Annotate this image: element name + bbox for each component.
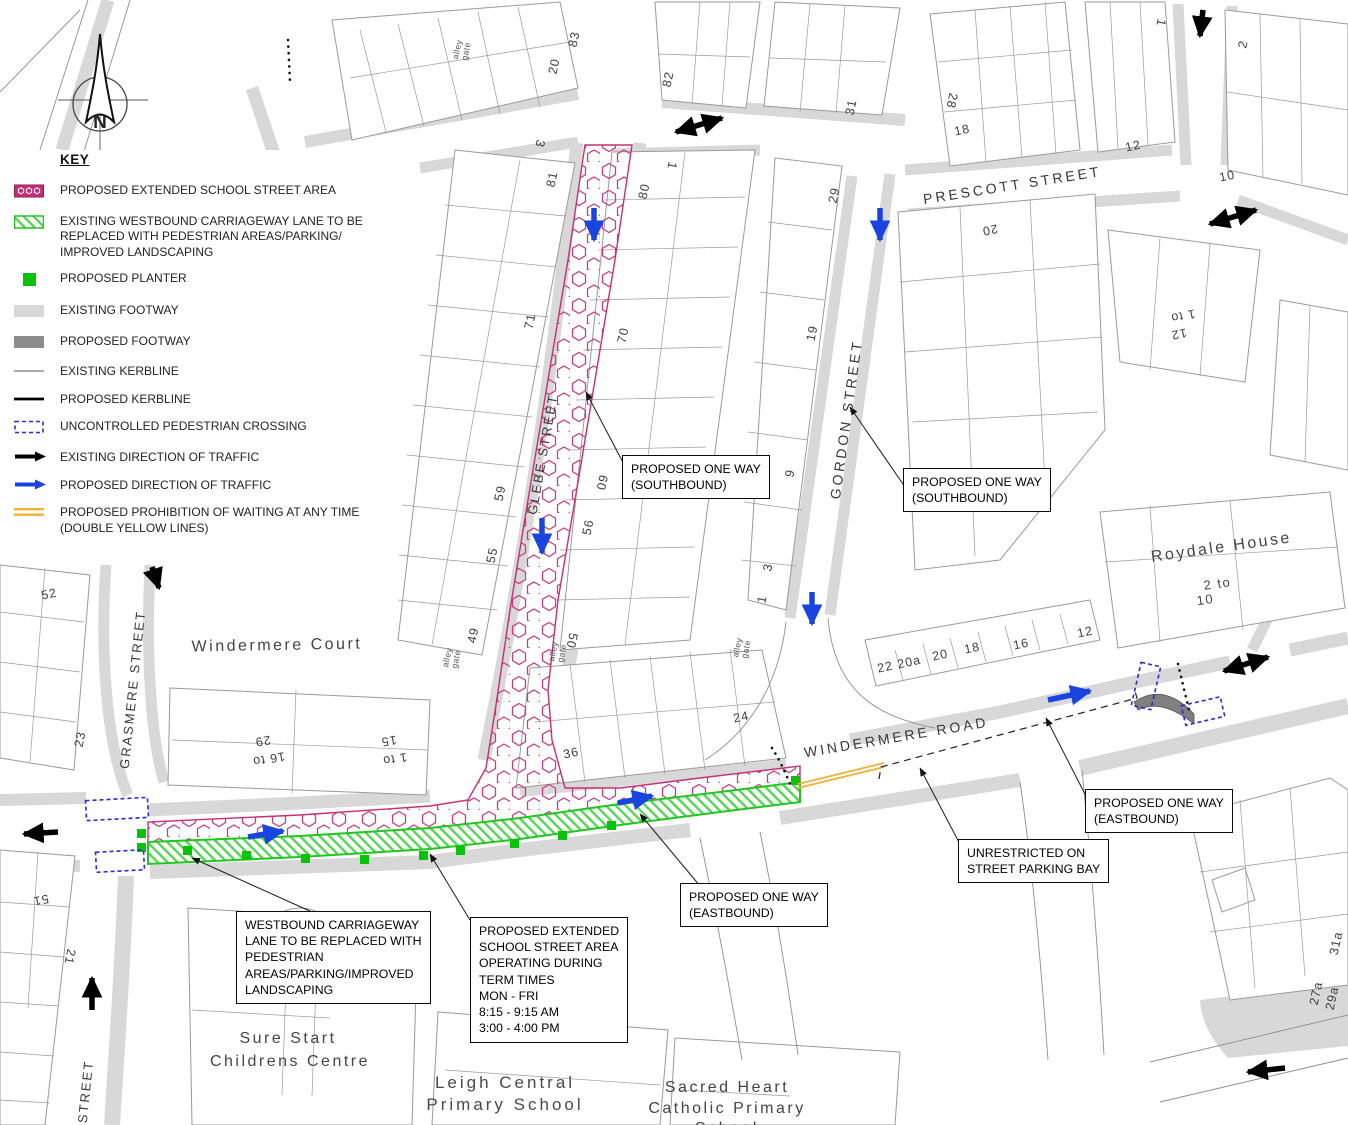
- callout-line: 8:15 - 9:15 AM: [479, 1004, 619, 1020]
- key-item-landscaping: EXISTING WESTBOUND CARRIAGEWAY LANE TO B…: [14, 214, 394, 261]
- key-heading: KEY: [60, 152, 394, 167]
- proposed-footway-icon: [14, 334, 48, 354]
- school-street-hatch-icon: [14, 183, 48, 203]
- callout-line: 3:00 - 4:00 PM: [479, 1020, 619, 1036]
- place-roydale-range-2: 10: [1196, 591, 1215, 608]
- callout-line: AREAS/PARKING/IMPROVED: [245, 966, 422, 982]
- key-item-proposed-footway: PROPOSED FOOTWAY: [14, 334, 394, 354]
- key-item-crossing: UNCONTROLLED PEDESTRIAN CROSSING: [14, 419, 394, 439]
- callout-line: STREET PARKING BAY: [967, 861, 1100, 877]
- key-label: PROPOSED PROHIBITION OF WAITING AT ANY T…: [60, 505, 394, 536]
- house-number: 15: [380, 733, 398, 750]
- callout-line: (SOUTHBOUND): [631, 477, 761, 493]
- callout-line: PROPOSED ONE WAY: [631, 461, 761, 477]
- callout-line: (EASTBOUND): [1094, 811, 1224, 827]
- callout-line: LANE TO BE REPLACED WITH: [245, 933, 422, 949]
- place-sacred-1: Sacred Heart: [665, 1079, 789, 1096]
- place-sacred-2: Catholic Primary: [648, 1100, 805, 1117]
- callout-line: TERM TIMES: [479, 972, 619, 988]
- callout-one-way-southbound-gordon: PROPOSED ONE WAY (SOUTHBOUND): [903, 468, 1051, 512]
- key-item-proposed-direction: PROPOSED DIRECTION OF TRAFFIC: [14, 478, 394, 495]
- callout-line: PROPOSED ONE WAY: [689, 889, 819, 905]
- key-item-school-street: PROPOSED EXTENDED SCHOOL STREET AREA: [14, 183, 394, 203]
- callout-line: PROPOSED ONE WAY: [912, 474, 1042, 490]
- street-label-windermere: WINDERMERE ROAD: [803, 714, 990, 761]
- key-label: EXISTING DIRECTION OF TRAFFIC: [60, 450, 394, 466]
- house-number: 10: [1218, 168, 1236, 185]
- callout-unrestricted-parking: UNRESTRICTED ON STREET PARKING BAY: [958, 839, 1109, 883]
- double-yellow-lines: [798, 763, 884, 788]
- house-number: 29: [826, 186, 843, 204]
- place-leigh-2: Primary School: [426, 1095, 583, 1114]
- key-label: PROPOSED DIRECTION OF TRAFFIC: [60, 478, 394, 494]
- key-label: PROPOSED PLANTER: [60, 271, 394, 287]
- house-number: 29: [254, 733, 272, 750]
- street-label-grasmere: GRASMERE STREET: [117, 610, 149, 770]
- callout-one-way-eastbound-east: PROPOSED ONE WAY (EASTBOUND): [1085, 789, 1233, 833]
- callout-one-way-southbound-glebe: PROPOSED ONE WAY (SOUTHBOUND): [622, 455, 770, 499]
- callout-line: (SOUTHBOUND): [912, 490, 1042, 506]
- key-item-existing-kerbline: EXISTING KERBLINE: [14, 364, 394, 381]
- key-item-planter: PROPOSED PLANTER: [14, 271, 394, 292]
- key-label: EXISTING WESTBOUND CARRIAGEWAY LANE TO B…: [60, 214, 394, 261]
- key-item-existing-footway: EXISTING FOOTWAY: [14, 303, 394, 323]
- traffic-scheme-map: N PRESCOTT STREET GORDON STREET GLEBE ST…: [0, 0, 1348, 1125]
- existing-kerbline-icon: [14, 364, 48, 381]
- key-item-double-yellow: PROPOSED PROHIBITION OF WAITING AT ANY T…: [14, 505, 394, 536]
- callout-westbound-lane: WESTBOUND CARRIAGEWAY LANE TO BE REPLACE…: [236, 911, 431, 1004]
- callout-line: MON - FRI: [479, 988, 619, 1004]
- callout-line: PROPOSED ONE WAY: [1094, 795, 1224, 811]
- planter-square-icon: [14, 271, 48, 292]
- place-leigh-1: Leigh Central: [435, 1073, 575, 1092]
- callout-one-way-eastbound-west: PROPOSED ONE WAY (EASTBOUND): [680, 883, 828, 927]
- proposed-traffic-arrow-icon: [14, 478, 48, 495]
- callout-line: OPERATING DURING: [479, 955, 619, 971]
- double-yellow-lines-icon: [14, 505, 48, 523]
- callout-school-street-times: PROPOSED EXTENDED SCHOOL STREET AREA OPE…: [470, 917, 628, 1043]
- key-label: EXISTING KERBLINE: [60, 364, 394, 380]
- callout-line: PEDESTRIAN: [245, 949, 422, 965]
- key-label: PROPOSED EXTENDED SCHOOL STREET AREA: [60, 183, 394, 199]
- existing-traffic-arrow-icon: [14, 450, 48, 467]
- place-sacred-3: School: [695, 1120, 759, 1125]
- key-item-existing-direction: EXISTING DIRECTION OF TRAFFIC: [14, 450, 394, 467]
- street-label-street: STREET: [75, 1059, 97, 1124]
- callout-line: UNRESTRICTED ON: [967, 845, 1100, 861]
- key-label: EXISTING FOOTWAY: [60, 303, 394, 319]
- house-number: 23: [72, 730, 89, 748]
- existing-footway-icon: [14, 303, 48, 323]
- callout-line: PROPOSED EXTENDED: [479, 923, 619, 939]
- proposed-kerbline-icon: [14, 392, 48, 409]
- pedestrian-crossing-icon: [14, 419, 48, 439]
- place-sure-start-2: Childrens Centre: [210, 1053, 370, 1070]
- callout-line: LANDSCAPING: [245, 982, 422, 998]
- key-label: UNCONTROLLED PEDESTRIAN CROSSING: [60, 419, 394, 435]
- key-item-proposed-kerbline: PROPOSED KERBLINE: [14, 392, 394, 409]
- callout-line: (EASTBOUND): [689, 905, 819, 921]
- map-key: KEY PROPOSED EXTENDED SCHOOL STREET AREA…: [14, 150, 394, 553]
- key-label: PROPOSED FOOTWAY: [60, 334, 394, 350]
- callout-line: WESTBOUND CARRIAGEWAY: [245, 917, 422, 933]
- key-label: PROPOSED KERBLINE: [60, 392, 394, 408]
- callout-line: SCHOOL STREET AREA: [479, 939, 619, 955]
- compass-label: N: [93, 112, 107, 133]
- house-number: 83: [566, 30, 583, 48]
- landscaping-hatch-icon: [14, 214, 48, 234]
- place-windermere-court: Windermere Court: [191, 636, 362, 656]
- place-sure-start-1: Sure Start: [239, 1030, 336, 1047]
